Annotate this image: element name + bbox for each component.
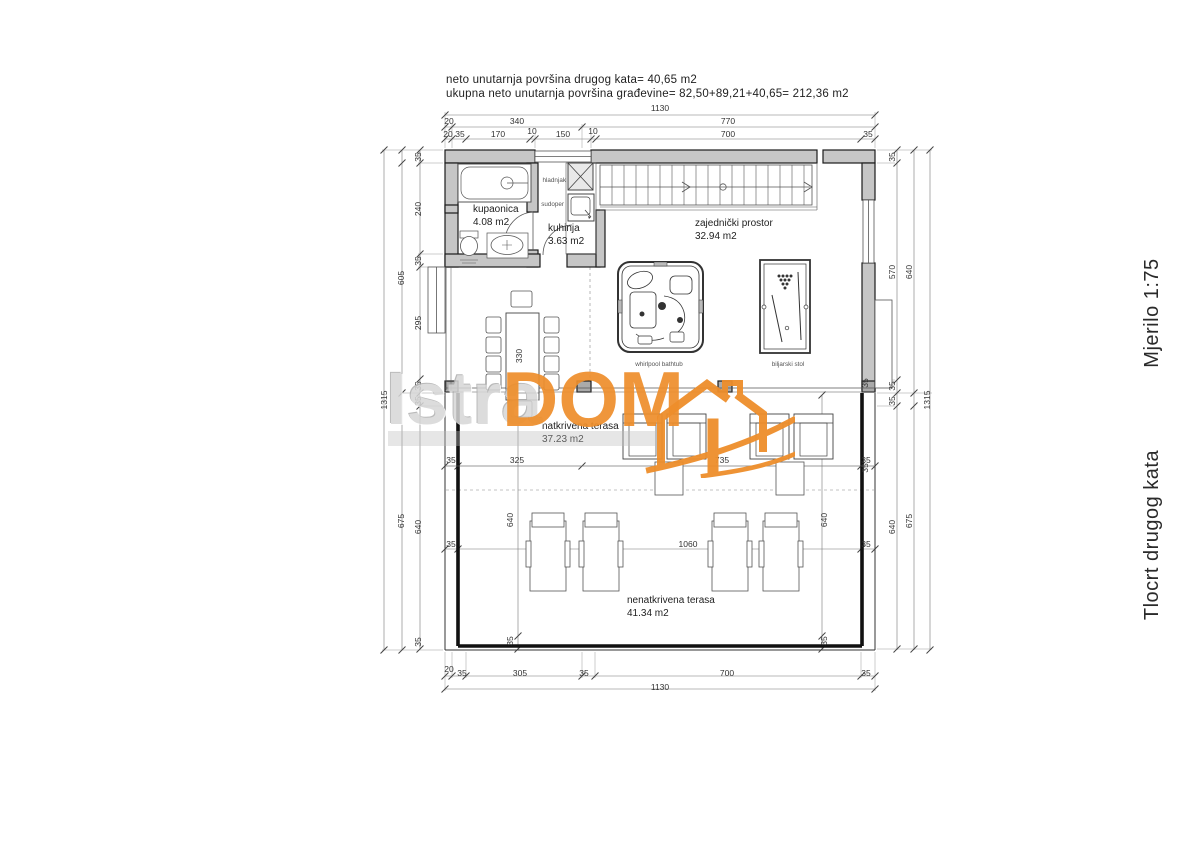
billiard-table (760, 260, 810, 353)
room-bathroom-name: kupaonica (473, 204, 519, 215)
dim: 35 (505, 636, 515, 646)
dim: 640 (887, 520, 897, 534)
dim: 640 (413, 520, 423, 534)
dim: 240 (413, 202, 423, 216)
dim: 170 (491, 129, 505, 139)
billiard-label: biljarski stol (772, 361, 805, 368)
room-open-terrace-name: nenatkrivena terasa (627, 595, 715, 606)
scale-label: Mjerilo 1:75 (1141, 258, 1163, 367)
dim: 675 (904, 514, 914, 528)
dim: 10 (527, 126, 537, 136)
dim: 640 (819, 513, 829, 527)
dim: 35 (861, 455, 871, 465)
dim: 640 (904, 265, 914, 279)
sink-label: sudoper (541, 201, 564, 208)
bathtub (458, 164, 531, 202)
dim: 35 (455, 129, 465, 139)
dim: 770 (721, 116, 735, 126)
dim: 35 (887, 381, 897, 391)
dim: 20 (443, 129, 453, 139)
whirlpool-bathtub (618, 262, 703, 352)
drawing-title: Tlocrt drugog kata (1141, 450, 1163, 621)
kitchen-sink (568, 194, 594, 221)
dim: 605 (396, 271, 406, 285)
dim-top-total: 1130 (651, 103, 670, 113)
room-bathroom-area: 4.08 m2 (473, 217, 510, 228)
dim: 1315 (922, 390, 932, 409)
dim: 35 (863, 129, 873, 139)
room-kitchen-name: kuhinja (548, 223, 580, 234)
dim: 35 (861, 668, 871, 678)
dim: 35 (413, 637, 423, 647)
dim: 35 (413, 152, 423, 162)
dim: 675 (396, 514, 406, 528)
dim: 35 (819, 636, 829, 646)
bathroom-sink (487, 233, 528, 258)
dim: 700 (721, 129, 735, 139)
sun-loungers (526, 513, 803, 591)
dim-bottom-total: 1130 (651, 682, 670, 692)
stairs (600, 163, 817, 210)
dim: 325 (510, 455, 524, 465)
dim: 20 (444, 116, 454, 126)
room-kitchen-area: 3.63 m2 (548, 236, 585, 247)
dim: 20 (444, 664, 454, 674)
dim: 35 (413, 256, 423, 266)
dim: 10 (588, 126, 598, 136)
dim: 35 (861, 539, 871, 549)
dim: 150 (556, 129, 570, 139)
dim: 340 (510, 116, 524, 126)
dim: 1060 (679, 539, 698, 549)
dim: 35 (860, 378, 870, 388)
dim: 35 (887, 152, 897, 162)
fridge-label: hladnjak (543, 177, 567, 184)
dim: 35 (446, 455, 456, 465)
house-icon (645, 376, 795, 478)
dim: 570 (887, 265, 897, 279)
dim: 305 (513, 668, 527, 678)
room-living-area: 32.94 m2 (695, 231, 737, 242)
dim: 35 (887, 396, 897, 406)
floor-plan-page: neto unutarnja površina drugog kata= 40,… (0, 0, 1200, 848)
dim: 700 (720, 668, 734, 678)
room-open-terrace-area: 41.34 m2 (627, 608, 669, 619)
dim: 35 (457, 668, 467, 678)
dim: 35 (446, 539, 456, 549)
dim: 640 (505, 513, 515, 527)
room-living-name: zajednički prostor (695, 218, 773, 229)
dim: 35 (579, 668, 589, 678)
dim: 295 (413, 316, 423, 330)
fridge (568, 163, 593, 190)
